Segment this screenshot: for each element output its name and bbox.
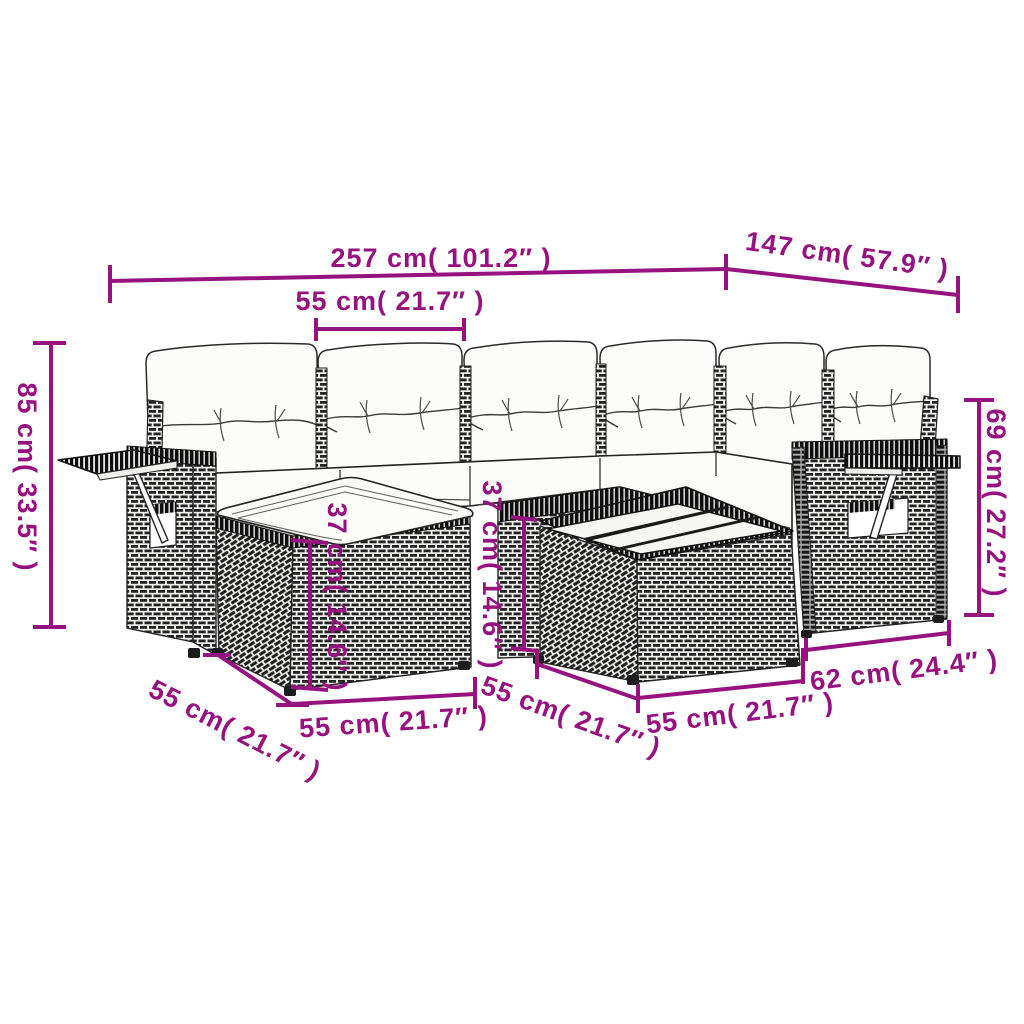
svg-text:85 cm( 33.5″ ): 85 cm( 33.5″ ) [12, 382, 42, 571]
svg-text:37 cm( 14.6″ ): 37 cm( 14.6″ ) [322, 502, 352, 691]
svg-text:55 cm( 21.7″ ): 55 cm( 21.7″ ) [295, 286, 484, 316]
svg-text:69 cm( 27.2″ ): 69 cm( 27.2″ ) [981, 408, 1011, 597]
svg-text:37 cm( 14.6″ ): 37 cm( 14.6″ ) [477, 480, 507, 669]
svg-text:257 cm( 101.2″ ): 257 cm( 101.2″ ) [330, 243, 551, 273]
